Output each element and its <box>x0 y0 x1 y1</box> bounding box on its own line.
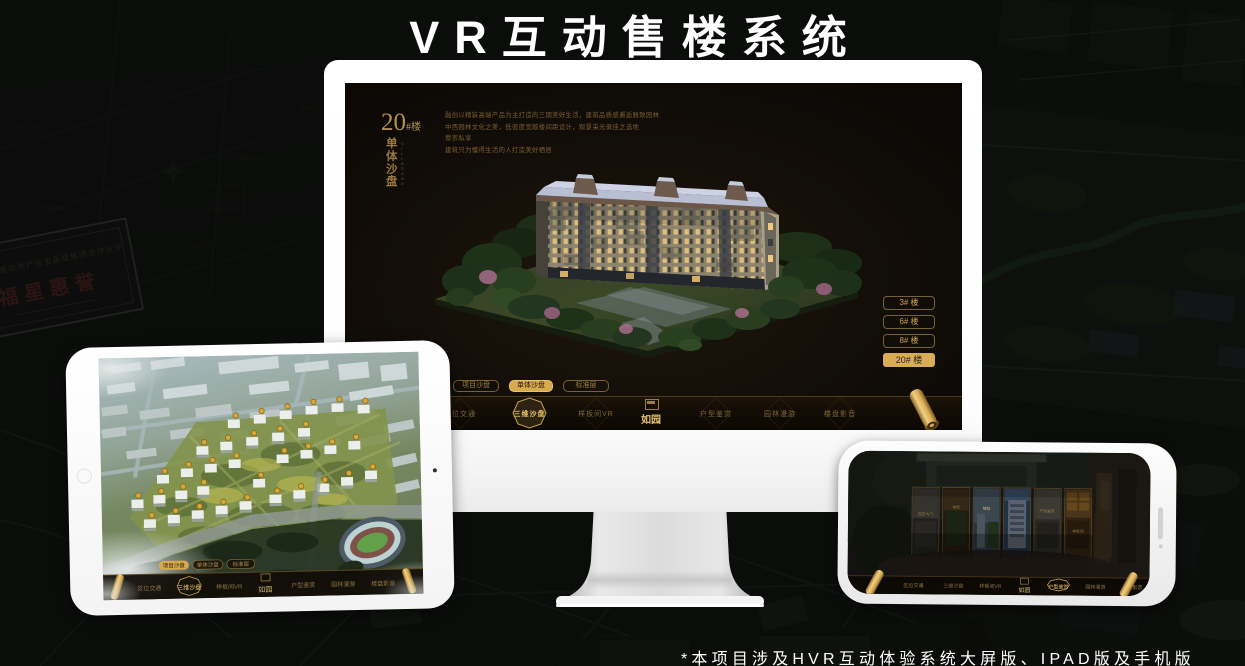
svg-text:地库: 地库 <box>952 505 960 510</box>
svg-text:楼栋: 楼栋 <box>983 506 991 511</box>
svg-text:样板间: 样板间 <box>1072 529 1084 534</box>
svg-text:户型鉴赏: 户型鉴赏 <box>1048 583 1068 590</box>
svg-text:城市主干道: 城市主干道 <box>12 124 42 132</box>
svg-text:园区大门: 园区大门 <box>918 511 933 516</box>
svg-text:国风三期: 国风三期 <box>190 244 214 252</box>
svg-text:滨河大道: 滨河大道 <box>130 84 154 92</box>
svg-text:户型鉴赏: 户型鉴赏 <box>1039 508 1054 513</box>
svg-text:奥体西路: 奥体西路 <box>40 204 64 212</box>
svg-text:如园: 如园 <box>1018 586 1030 594</box>
svg-text:园林漫游: 园林漫游 <box>1085 584 1105 591</box>
svg-text:样板间VR: 样板间VR <box>979 583 1001 590</box>
svg-text:新城大道: 新城大道 <box>240 154 264 162</box>
svg-text:观澜路: 观澜路 <box>300 104 318 112</box>
svg-text:三维沙盘: 三维沙盘 <box>943 582 963 589</box>
svg-text:如园: 如园 <box>258 585 272 594</box>
svg-text:区位交通: 区位交通 <box>903 582 923 589</box>
